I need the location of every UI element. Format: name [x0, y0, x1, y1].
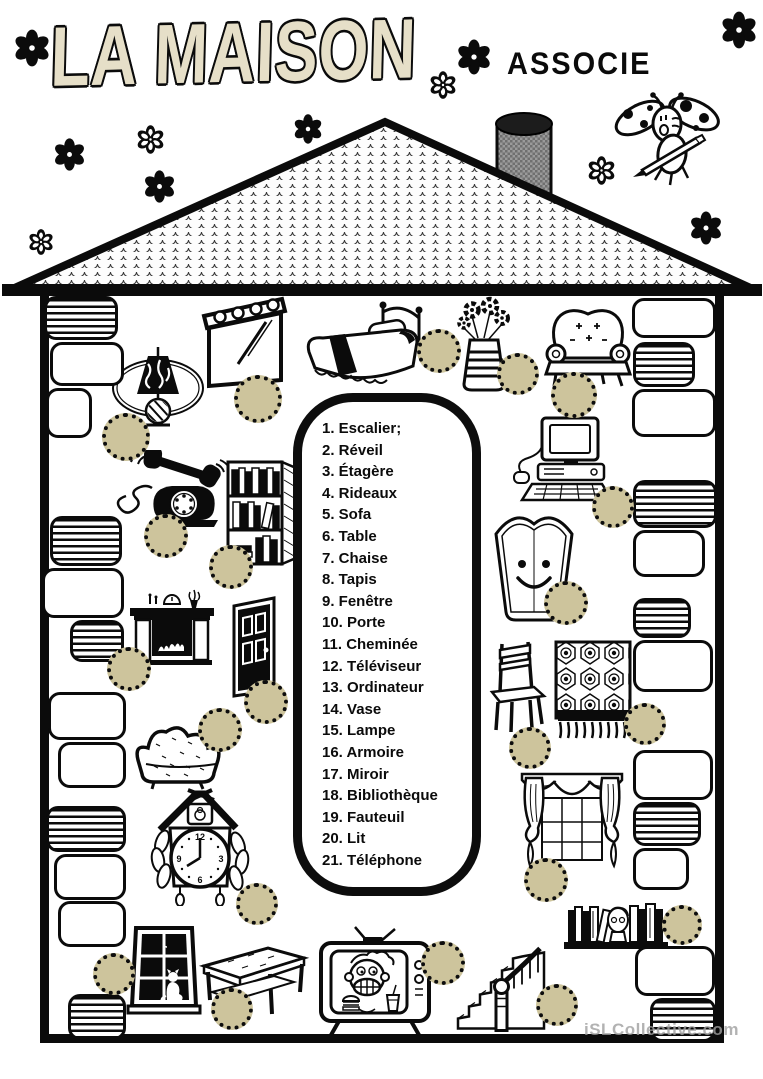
word-list: 1. Escalier;2. Réveil3. Étagère4. Rideau… — [322, 418, 472, 871]
answer-circle-curtains[interactable] — [524, 858, 568, 902]
answer-circle-table[interactable] — [211, 988, 253, 1030]
list-item-12: 12. Téléviseur — [322, 656, 472, 678]
illustration-bed — [303, 296, 428, 391]
flower-icon — [142, 169, 177, 204]
svg-text:3: 3 — [218, 854, 223, 864]
list-item-20: 20. Lit — [322, 828, 472, 850]
border-brick — [58, 901, 126, 947]
answer-circle-chair[interactable] — [509, 727, 551, 769]
flower-icon — [52, 137, 87, 172]
list-item-15: 15. Lampe — [322, 720, 472, 742]
border-brick — [633, 750, 713, 800]
border-brick — [633, 640, 713, 692]
flower-icon — [455, 38, 493, 76]
answer-circle-door[interactable] — [244, 680, 288, 724]
border-brick — [42, 568, 124, 618]
list-item-7: 7. Chaise — [322, 548, 472, 570]
list-item-19: 19. Fauteuil — [322, 807, 472, 829]
answer-circle-staircase[interactable] — [536, 984, 578, 1026]
vocabulary-panel: 1. Escalier;2. Réveil3. Étagère4. Rideau… — [293, 393, 481, 896]
border-brick — [633, 848, 689, 890]
border-brick — [633, 802, 701, 846]
flower-icon — [719, 10, 759, 50]
illustration-chair — [486, 640, 548, 735]
border-brick — [633, 342, 695, 387]
illustration-bookcase-with-bust — [562, 898, 670, 950]
border-brick — [633, 530, 705, 577]
house-wall-right — [715, 292, 724, 1043]
answer-circle-computer[interactable] — [592, 486, 634, 528]
watermark: iSLCollective.com — [584, 1020, 739, 1040]
answer-circle-vase[interactable] — [497, 353, 539, 395]
border-brick — [633, 480, 717, 528]
border-brick — [46, 806, 126, 852]
list-item-10: 10. Porte — [322, 612, 472, 634]
answer-circle-bookshelf[interactable] — [209, 545, 253, 589]
answer-circle-fireplace[interactable] — [107, 647, 151, 691]
border-brick — [68, 994, 126, 1040]
border-brick — [58, 742, 126, 788]
list-item-2: 2. Réveil — [322, 440, 472, 462]
border-brick — [632, 389, 716, 437]
border-brick — [635, 946, 715, 996]
illustration-armchair — [542, 300, 634, 388]
flower-icon — [586, 155, 617, 186]
answer-circle-lamp[interactable] — [102, 413, 150, 461]
border-brick — [54, 854, 126, 900]
answer-circle-armchair[interactable] — [551, 372, 597, 418]
border-brick — [632, 298, 716, 338]
answer-circle-window[interactable] — [234, 375, 282, 423]
flower-icon — [688, 210, 724, 246]
list-item-21: 21. Téléphone — [322, 850, 472, 872]
illustration-curtains — [518, 770, 626, 872]
list-item-13: 13. Ordinateur — [322, 677, 472, 699]
answer-circle-sofa[interactable] — [198, 708, 242, 752]
list-item-17: 17. Miroir — [322, 764, 472, 786]
answer-circle-television[interactable] — [421, 941, 465, 985]
list-item-14: 14. Vase — [322, 699, 472, 721]
list-item-6: 6. Table — [322, 526, 472, 548]
border-brick — [50, 516, 122, 566]
illustration-window-with-cat — [126, 926, 202, 1016]
instruction-label: ASSOCIE — [507, 46, 652, 82]
page-title: LA MAISON — [49, 0, 418, 106]
list-item-3: 3. Étagère — [322, 461, 472, 483]
worksheet-page: LA MAISON ASSOCIE — [0, 0, 763, 1079]
list-item-18: 18. Bibliothèque — [322, 785, 472, 807]
answer-circle-bed[interactable] — [417, 329, 461, 373]
illustration-rug — [554, 640, 632, 742]
ladybug-mascot-icon — [612, 86, 724, 198]
list-item-8: 8. Tapis — [322, 569, 472, 591]
flower-icon — [292, 113, 324, 145]
border-brick — [48, 692, 126, 740]
answer-circle-window-with-cat[interactable] — [93, 953, 135, 995]
flower-icon — [135, 124, 166, 155]
border-brick — [44, 296, 118, 340]
list-item-1: 1. Escalier; — [322, 418, 472, 440]
list-item-9: 9. Fenêtre — [322, 591, 472, 613]
list-item-4: 4. Rideaux — [322, 483, 472, 505]
border-brick — [50, 342, 124, 386]
svg-text:6: 6 — [197, 875, 202, 885]
svg-text:9: 9 — [176, 854, 181, 864]
answer-circle-mirror[interactable] — [544, 581, 588, 625]
flower-icon — [428, 70, 458, 100]
answer-circle-telephone[interactable] — [144, 514, 188, 558]
answer-circle-rug[interactable] — [624, 703, 666, 745]
list-item-16: 16. Armoire — [322, 742, 472, 764]
list-item-11: 11. Cheminée — [322, 634, 472, 656]
answer-circle-bookcase[interactable] — [662, 905, 702, 945]
illustration-television — [315, 925, 435, 1037]
flower-icon — [27, 228, 55, 256]
flower-icon — [12, 28, 52, 68]
border-brick — [633, 598, 691, 638]
list-item-5: 5. Sofa — [322, 504, 472, 526]
answer-circle-cuckoo-clock[interactable] — [236, 883, 278, 925]
border-brick — [46, 388, 92, 438]
